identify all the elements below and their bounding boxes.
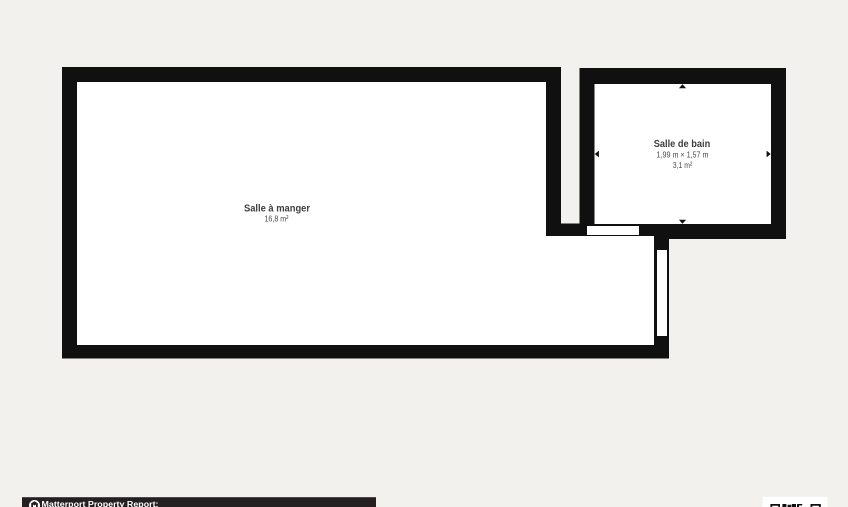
svg-text:1,99 m × 1,57 m: 1,99 m × 1,57 m: [657, 150, 709, 160]
svg-text:3,1 m²: 3,1 m²: [673, 160, 693, 170]
svg-text:Salle de bain: Salle de bain: [654, 138, 711, 150]
svg-text:Matterport Property Report:: Matterport Property Report:: [42, 500, 159, 507]
svg-text:16,8 m²: 16,8 m²: [265, 214, 289, 224]
